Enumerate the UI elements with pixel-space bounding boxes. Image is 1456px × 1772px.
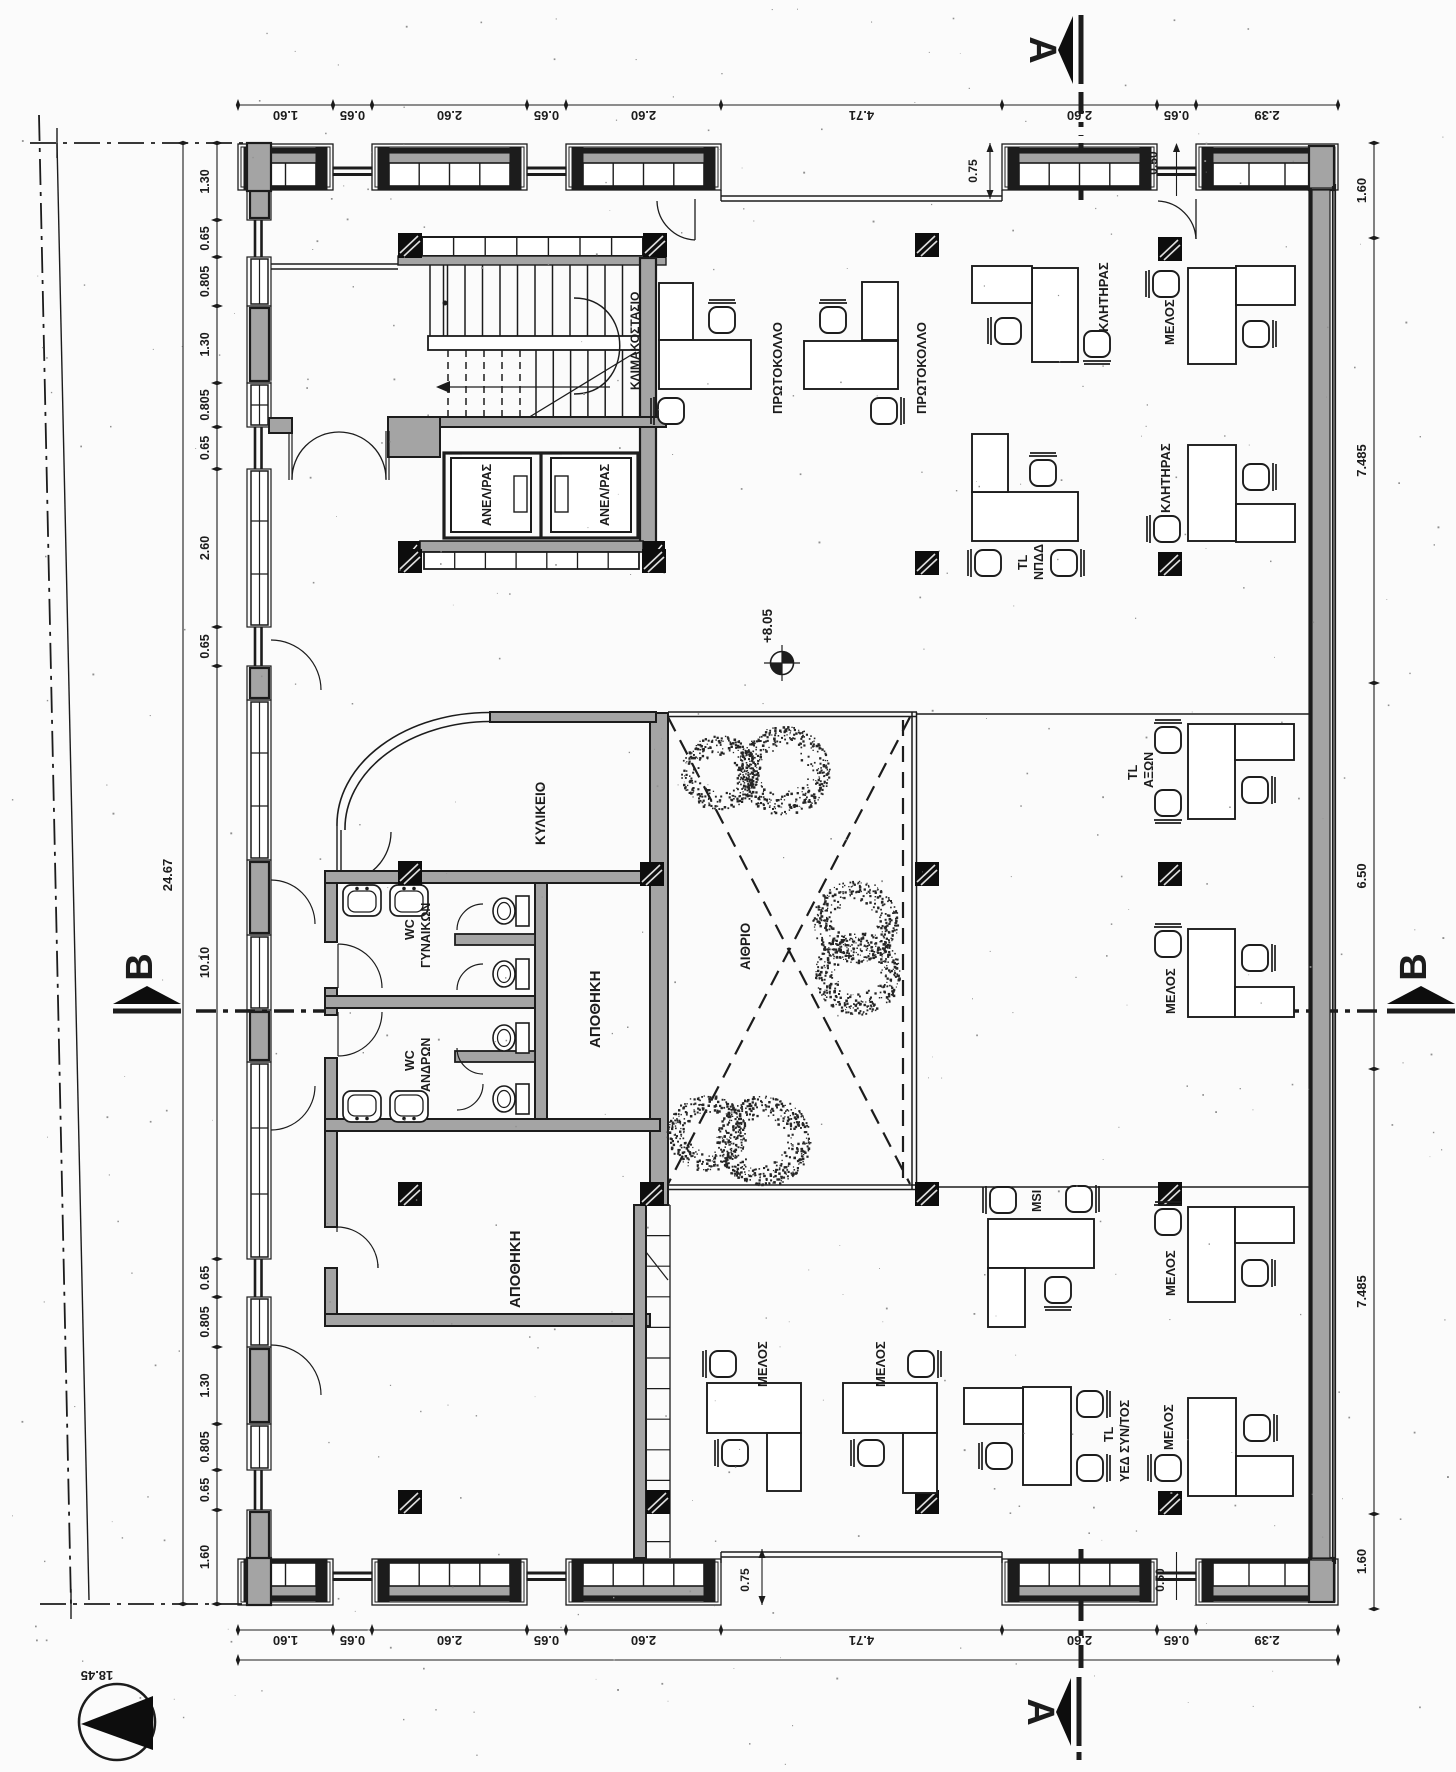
svg-text:2.60: 2.60 xyxy=(631,1633,656,1648)
svg-text:0.65: 0.65 xyxy=(198,436,212,460)
svg-text:1.60: 1.60 xyxy=(273,1633,298,1648)
svg-text:1.60: 1.60 xyxy=(1354,178,1369,203)
svg-text:0.805: 0.805 xyxy=(198,1306,212,1337)
svg-text:WC: WC xyxy=(403,1050,417,1071)
svg-text:4.71: 4.71 xyxy=(849,108,874,123)
svg-text:0.75: 0.75 xyxy=(966,159,980,183)
svg-text:10.10: 10.10 xyxy=(198,947,212,978)
svg-text:A: A xyxy=(1021,36,1063,63)
svg-text:0.805: 0.805 xyxy=(198,266,212,297)
svg-text:ΚΥΛΙΚΕΙΟ: ΚΥΛΙΚΕΙΟ xyxy=(533,782,548,845)
svg-text:MSI: MSI xyxy=(1030,1190,1044,1212)
svg-text:ΜΕΛΟΣ: ΜΕΛΟΣ xyxy=(1163,968,1178,1014)
svg-text:0.805: 0.805 xyxy=(198,1431,212,1462)
svg-text:ΜΕΛΟΣ: ΜΕΛΟΣ xyxy=(1163,1250,1178,1296)
svg-text:2.39: 2.39 xyxy=(1254,1633,1279,1648)
svg-text:ΜΕΛΟΣ: ΜΕΛΟΣ xyxy=(873,1341,888,1387)
svg-text:2.60: 2.60 xyxy=(437,1633,462,1648)
svg-text:A: A xyxy=(1019,1698,1061,1725)
svg-text:ΚΛΗΤΗΡΑΣ: ΚΛΗΤΗΡΑΣ xyxy=(1158,443,1173,513)
svg-text:ΑΝΕΛ/ΡΑΣ: ΑΝΕΛ/ΡΑΣ xyxy=(480,463,494,526)
svg-text:+8.05: +8.05 xyxy=(760,608,775,643)
svg-text:7.485: 7.485 xyxy=(1354,1275,1369,1308)
svg-text:ΜΕΛΟΣ: ΜΕΛΟΣ xyxy=(755,1341,770,1387)
svg-text:2.60: 2.60 xyxy=(198,536,212,560)
svg-text:WC: WC xyxy=(403,919,417,940)
svg-text:0.65: 0.65 xyxy=(198,226,212,250)
svg-text:1.60: 1.60 xyxy=(198,1545,212,1569)
svg-text:ΓΥΝΑΙΚΩΝ: ΓΥΝΑΙΚΩΝ xyxy=(419,903,433,968)
svg-text:24.67: 24.67 xyxy=(160,859,175,892)
svg-text:TL: TL xyxy=(1102,1426,1116,1442)
svg-text:0.65: 0.65 xyxy=(198,1478,212,1502)
svg-text:1.30: 1.30 xyxy=(198,169,212,193)
svg-text:ΑΝΔΡΩΝ: ΑΝΔΡΩΝ xyxy=(419,1038,433,1092)
svg-text:1.30: 1.30 xyxy=(198,332,212,356)
svg-text:ΑΠΟΘΗΚΗ: ΑΠΟΘΗΚΗ xyxy=(587,971,604,1049)
svg-text:ΠΡΩΤΟΚΟΛΛΟ: ΠΡΩΤΟΚΟΛΛΟ xyxy=(770,322,785,414)
svg-text:1.30: 1.30 xyxy=(198,1373,212,1397)
svg-text:B: B xyxy=(1393,953,1435,980)
svg-text:6.50: 6.50 xyxy=(1354,863,1369,888)
svg-text:18.45: 18.45 xyxy=(81,1668,114,1683)
svg-text:TL: TL xyxy=(1126,764,1140,780)
svg-text:TL: TL xyxy=(1016,554,1030,570)
svg-text:B: B xyxy=(119,953,161,980)
svg-text:0.75: 0.75 xyxy=(738,1568,752,1592)
svg-text:2.39: 2.39 xyxy=(1254,108,1279,123)
svg-text:1.60: 1.60 xyxy=(1354,1549,1369,1574)
svg-text:4.71: 4.71 xyxy=(849,1633,874,1648)
svg-text:0.805: 0.805 xyxy=(198,389,212,420)
svg-text:ΑΠΟΘΗΚΗ: ΑΠΟΘΗΚΗ xyxy=(507,1231,524,1309)
svg-text:0.65: 0.65 xyxy=(198,1266,212,1290)
svg-text:ΜΕΛΟΣ: ΜΕΛΟΣ xyxy=(1162,299,1177,345)
svg-text:ΚΛΙΜΑΚΟΣΤΑΣΙΟ: ΚΛΙΜΑΚΟΣΤΑΣΙΟ xyxy=(628,292,642,390)
svg-text:0.65: 0.65 xyxy=(198,634,212,658)
svg-text:ΑΝΕΛ/ΡΑΣ: ΑΝΕΛ/ΡΑΣ xyxy=(598,463,612,526)
svg-text:ΚΛΗΤΗΡΑΣ: ΚΛΗΤΗΡΑΣ xyxy=(1096,262,1111,332)
svg-text:0.65: 0.65 xyxy=(1164,1633,1189,1648)
svg-text:ΝΠΔΔ: ΝΠΔΔ xyxy=(1032,544,1046,580)
svg-text:2.60: 2.60 xyxy=(631,108,656,123)
svg-text:0.65: 0.65 xyxy=(340,108,365,123)
svg-text:ΑΙΘΡΙΟ: ΑΙΘΡΙΟ xyxy=(738,923,753,970)
svg-text:2.60: 2.60 xyxy=(437,108,462,123)
svg-text:ΠΡΩΤΟΚΟΛΛΟ: ΠΡΩΤΟΚΟΛΛΟ xyxy=(914,322,929,414)
svg-text:0.65: 0.65 xyxy=(1164,108,1189,123)
svg-text:ΜΕΛΟΣ: ΜΕΛΟΣ xyxy=(1161,1404,1176,1450)
svg-text:0.65: 0.65 xyxy=(534,1633,559,1648)
svg-text:7.485: 7.485 xyxy=(1354,444,1369,477)
svg-text:ΑΞΩΝ: ΑΞΩΝ xyxy=(1142,752,1156,788)
svg-text:0.65: 0.65 xyxy=(534,108,559,123)
svg-text:ΥΕΔ ΣΥΝ/ΤΟΣ: ΥΕΔ ΣΥΝ/ΤΟΣ xyxy=(1118,1399,1132,1482)
svg-text:1.60: 1.60 xyxy=(273,108,298,123)
svg-text:0.65: 0.65 xyxy=(340,1633,365,1648)
